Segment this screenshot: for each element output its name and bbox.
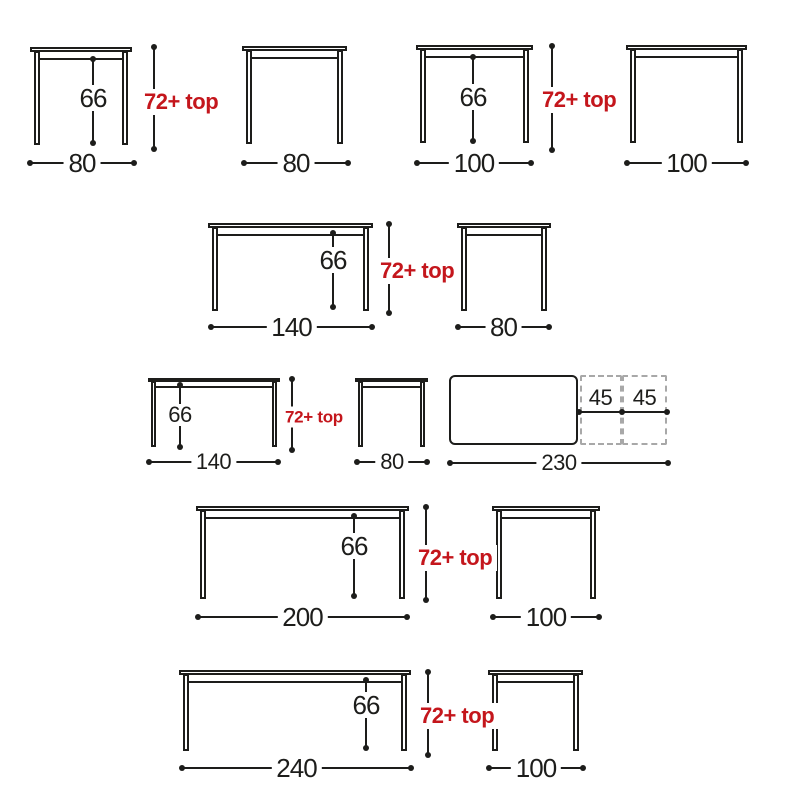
dimension-dot	[596, 614, 602, 620]
table-apron	[636, 56, 737, 58]
dimension-dot	[208, 324, 214, 330]
overall-height-label: 72+ top	[540, 87, 621, 113]
table-apron	[252, 57, 337, 59]
dimension-dot	[195, 614, 201, 620]
table-apron	[498, 681, 573, 683]
table-leg-left	[34, 51, 40, 145]
table-leg-left	[200, 510, 206, 599]
table-top	[488, 670, 583, 675]
inner-height-label: 66	[455, 84, 492, 110]
dimension-dot	[665, 460, 671, 466]
dimension-dot	[576, 409, 582, 415]
width-dimension-label: 80	[485, 314, 522, 340]
dimension-dot	[546, 324, 552, 330]
width-dimension-label: 80	[375, 451, 408, 473]
table-leg-left	[420, 49, 426, 143]
dimension-dot	[345, 160, 351, 166]
dimension-dot	[549, 43, 555, 49]
dimension-dot	[330, 304, 336, 310]
dimension-dot	[354, 459, 360, 465]
table-leg-right	[420, 381, 425, 447]
dimension-dot	[424, 459, 430, 465]
dimension-dot	[90, 56, 96, 62]
dimension-dot	[408, 765, 414, 771]
table-leg-left	[630, 49, 636, 143]
overall-height-label: 72+ top	[378, 258, 459, 284]
table-leg-right	[401, 674, 407, 751]
dimension-dot	[27, 160, 33, 166]
width-dimension-label: 140	[191, 451, 236, 473]
table-top	[30, 47, 132, 52]
dimension-dot	[179, 765, 185, 771]
width-dimension-label: 200	[277, 604, 327, 630]
table-dimension-diagram: 6680806610010066140806614080662001006624…	[0, 0, 800, 800]
table-leg-left	[461, 227, 467, 311]
table-100-side	[626, 45, 747, 143]
dimension-dot	[363, 677, 369, 683]
dimension-dot	[423, 597, 429, 603]
dimension-dot	[470, 54, 476, 60]
table-leg-left	[246, 50, 252, 144]
table-100-side-3	[488, 670, 583, 751]
width-dimension-label: 100	[511, 755, 561, 781]
dimension-dot	[289, 376, 295, 382]
dimension-dot	[528, 160, 534, 166]
table-apron	[502, 517, 590, 519]
dimension-dot	[330, 230, 336, 236]
dimension-dot	[146, 459, 152, 465]
dimension-dot	[414, 160, 420, 166]
dimension-dot	[151, 146, 157, 152]
dimension-dot	[423, 504, 429, 510]
dimension-dot	[447, 460, 453, 466]
table-leg-left	[183, 674, 189, 751]
table-leg-right	[272, 381, 277, 447]
table-leg-left	[358, 381, 363, 447]
inner-height-label: 66	[348, 692, 385, 718]
overall-height-label: 72+ top	[283, 407, 348, 428]
inner-height-label: 66	[75, 85, 112, 111]
table-leg-right	[573, 674, 579, 751]
table-top	[626, 45, 747, 50]
dimension-dot	[404, 614, 410, 620]
table-leg-right	[590, 510, 596, 599]
table-leg-right	[122, 51, 128, 145]
table-leg-right	[337, 50, 343, 144]
dimension-dot	[425, 669, 431, 675]
table-top	[148, 378, 280, 382]
table-apron	[218, 234, 363, 236]
dimension-dot	[743, 160, 749, 166]
dimension-dot	[363, 745, 369, 751]
dimension-dot	[624, 160, 630, 166]
dimension-dot	[386, 310, 392, 316]
dimension-dot	[90, 140, 96, 146]
inner-height-label: 66	[315, 247, 352, 273]
table-top	[208, 223, 373, 228]
overall-height-label: 72+ top	[418, 703, 499, 729]
table-apron	[467, 234, 541, 236]
dimension-dot	[425, 752, 431, 758]
dimension-dot	[289, 447, 295, 453]
dimension-dot	[177, 444, 183, 450]
overall-height-label: 72+ top	[142, 89, 223, 115]
table-apron	[40, 58, 122, 60]
overall-height-label: 72+ top	[416, 545, 497, 571]
width-dimension-label: 140	[266, 314, 316, 340]
dimension-dot	[549, 147, 555, 153]
table-top	[457, 223, 551, 228]
dimension-dot	[580, 765, 586, 771]
width-dimension-label: 80	[64, 150, 101, 176]
table-top	[196, 506, 409, 511]
table-leg-right	[737, 49, 743, 143]
dimension-dot	[351, 513, 357, 519]
dimension-dot	[386, 221, 392, 227]
table-80-side-small	[355, 378, 428, 447]
dimension-dot	[455, 324, 461, 330]
inner-height-label: 66	[336, 533, 373, 559]
table-leg-right	[399, 510, 405, 599]
width-dimension-label: 100	[449, 150, 499, 176]
dimension-dot	[664, 409, 670, 415]
table-80-side-2	[457, 223, 551, 311]
table-apron	[363, 386, 420, 388]
table-top	[416, 45, 533, 50]
table-top	[355, 378, 428, 382]
dimension-dot	[369, 324, 375, 330]
dimension-dot	[351, 593, 357, 599]
table-top	[179, 670, 411, 675]
tabletop-solid	[449, 375, 578, 445]
table-leg-right	[541, 227, 547, 311]
dimension-dot	[275, 459, 281, 465]
dimension-dot	[490, 614, 496, 620]
extension-width-label: 45	[629, 386, 660, 410]
table-100-side-2	[492, 506, 600, 599]
table-apron	[156, 386, 272, 388]
table-leg-right	[363, 227, 369, 311]
table-top	[242, 46, 347, 51]
extension-width-label: 45	[585, 386, 616, 410]
table-top	[492, 506, 600, 511]
width-dimension-label: 100	[521, 604, 571, 630]
inner-height-label: 66	[163, 404, 196, 426]
dimension-dot	[241, 160, 247, 166]
table-leg-left	[151, 381, 156, 447]
width-dimension-label: 80	[278, 150, 315, 176]
table-80-side	[242, 46, 347, 144]
dimension-dot	[131, 160, 137, 166]
dimension-dot	[486, 765, 492, 771]
width-dimension-label: 240	[271, 755, 321, 781]
dimension-dot	[151, 44, 157, 50]
width-dimension-label: 230	[536, 452, 581, 474]
table-apron	[206, 517, 399, 519]
table-apron	[189, 681, 401, 683]
table-leg-left	[212, 227, 218, 311]
dimension-dot	[619, 409, 625, 415]
dimension-dot	[177, 382, 183, 388]
table-leg-right	[523, 49, 529, 143]
table-200-front	[196, 506, 409, 599]
width-dimension-label: 100	[661, 150, 711, 176]
dimension-dot	[470, 138, 476, 144]
